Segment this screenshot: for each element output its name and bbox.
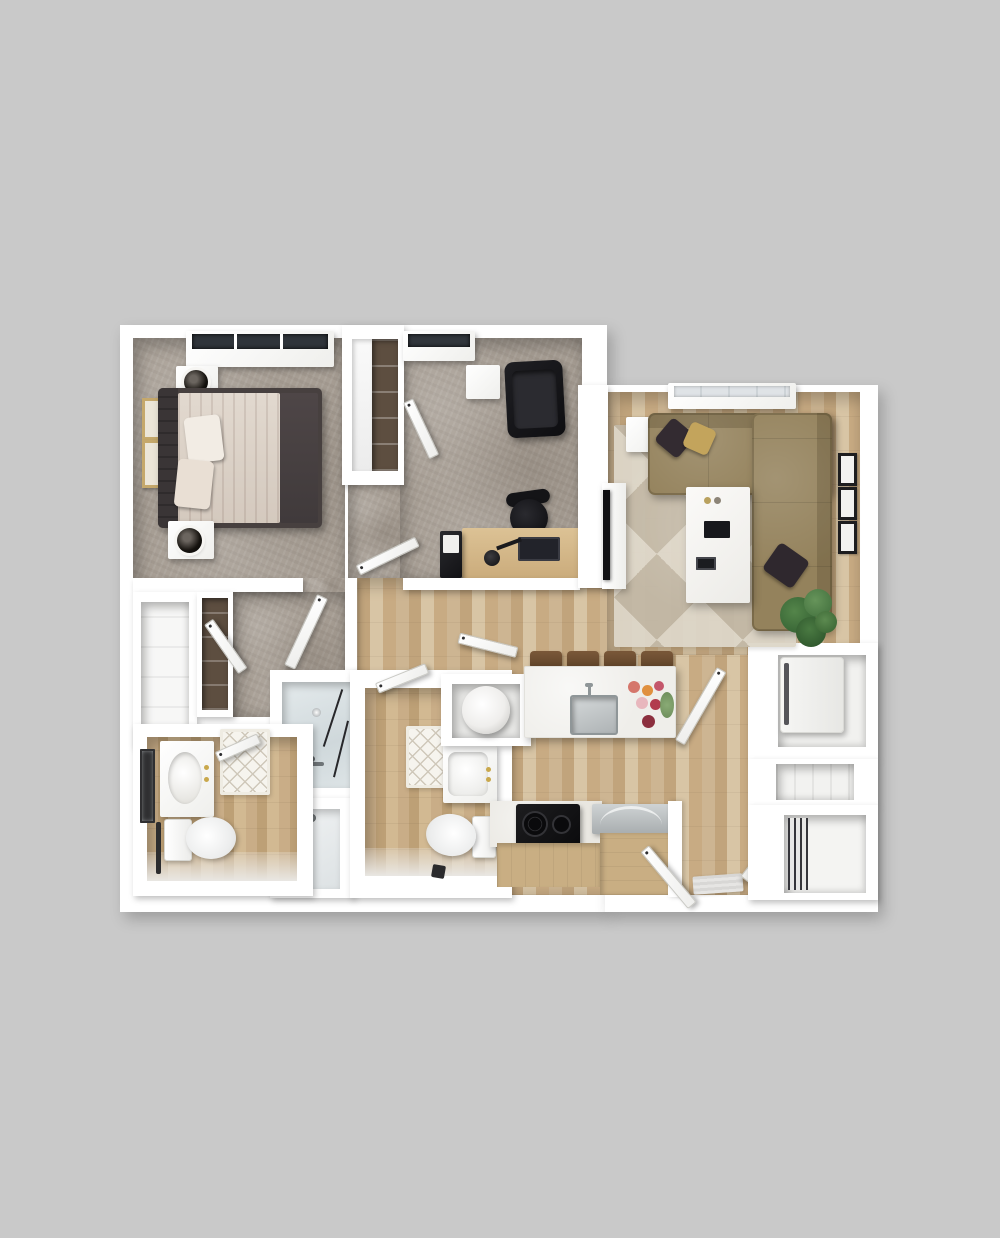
shelf-niche-interior [776, 764, 854, 800]
bathroom-1-faucet [204, 765, 209, 770]
storage-closet [748, 805, 878, 900]
desk [462, 528, 582, 578]
office-side-table [466, 365, 500, 399]
bed [158, 388, 322, 528]
bedroom-closet [342, 325, 404, 485]
water-heater [462, 686, 510, 734]
flower [654, 681, 664, 691]
bathroom-1-vanity [160, 741, 214, 817]
flower-leaves [660, 692, 674, 718]
washer-door-slot [784, 663, 789, 725]
flower [636, 697, 648, 709]
file-cabinet [440, 531, 462, 578]
burner [524, 813, 546, 835]
living-window-glass [674, 386, 790, 397]
bathroom-2-sink [448, 752, 488, 796]
island-faucet-head [585, 683, 593, 687]
office-window-glass [408, 334, 470, 347]
coffee-table-tray [696, 557, 716, 570]
kitchen-island [524, 666, 676, 738]
coffee-table [686, 487, 750, 603]
coffee-table-cup [714, 497, 721, 504]
coffee-table-book [704, 521, 730, 538]
plant-foliage [815, 611, 837, 633]
file-cabinet-drawer [443, 535, 459, 553]
bedroom-window-glass [192, 334, 328, 349]
towel-bar [156, 822, 161, 874]
floorplan [120, 325, 878, 912]
bed-pillow [183, 414, 224, 464]
closet-shelves [372, 339, 398, 471]
living-window [668, 383, 796, 409]
shower-head [312, 708, 321, 717]
wall-office-south [403, 578, 580, 590]
burner [554, 817, 569, 832]
island-sink [570, 695, 618, 735]
louvered-panel [788, 818, 808, 890]
office-window [403, 331, 475, 361]
bed-blanket [280, 393, 318, 523]
bathroom-1-sink [168, 752, 202, 804]
dishwasher-handle [600, 806, 662, 825]
flower [642, 715, 655, 728]
wall-strip-east [345, 578, 357, 674]
laundry-closet [748, 643, 878, 759]
entry-mat [692, 873, 743, 894]
wall-frame [838, 521, 857, 554]
tv [603, 490, 610, 580]
bathroom-1-faucet [204, 777, 209, 782]
wall-frame [838, 453, 857, 486]
bedroom-window [186, 331, 334, 367]
wall-bedroom-south [133, 578, 303, 592]
coffee-table-cup [704, 497, 711, 504]
bed-pillow [174, 458, 215, 510]
washer [780, 657, 844, 733]
cooktop [516, 804, 580, 846]
lounge-chair-cushion [512, 369, 559, 429]
water-heater-closet [441, 674, 531, 746]
waste-bin [431, 864, 446, 879]
closet-mirror-panel [352, 339, 372, 471]
flower [628, 681, 640, 693]
linen-closet-interior [141, 602, 189, 738]
island-faucet [588, 686, 591, 697]
bathroom-1-mirror [140, 749, 155, 823]
dishwasher-top [592, 804, 670, 834]
bathroom-2-faucet [486, 777, 491, 782]
laptop [518, 537, 560, 561]
bedroom-window-mullion [280, 334, 283, 349]
bathroom-2-vanity [443, 745, 497, 803]
lounge-chair [504, 360, 566, 439]
bedroom-window-mullion [234, 334, 237, 349]
cabinet-front-left [497, 843, 600, 887]
flower [642, 685, 653, 696]
floorplan-page: { "image": { "type": "3d-floorplan-rende… [0, 0, 1000, 1238]
bedroom-door-gap-floor [303, 578, 345, 592]
wall-frame [838, 487, 857, 520]
shelf-niche [748, 759, 878, 805]
toilet-bowl [186, 817, 236, 859]
bathroom-2-faucet [486, 767, 491, 772]
table-lamp [177, 528, 202, 553]
headboard [158, 388, 178, 528]
desk-lamp [484, 550, 500, 566]
